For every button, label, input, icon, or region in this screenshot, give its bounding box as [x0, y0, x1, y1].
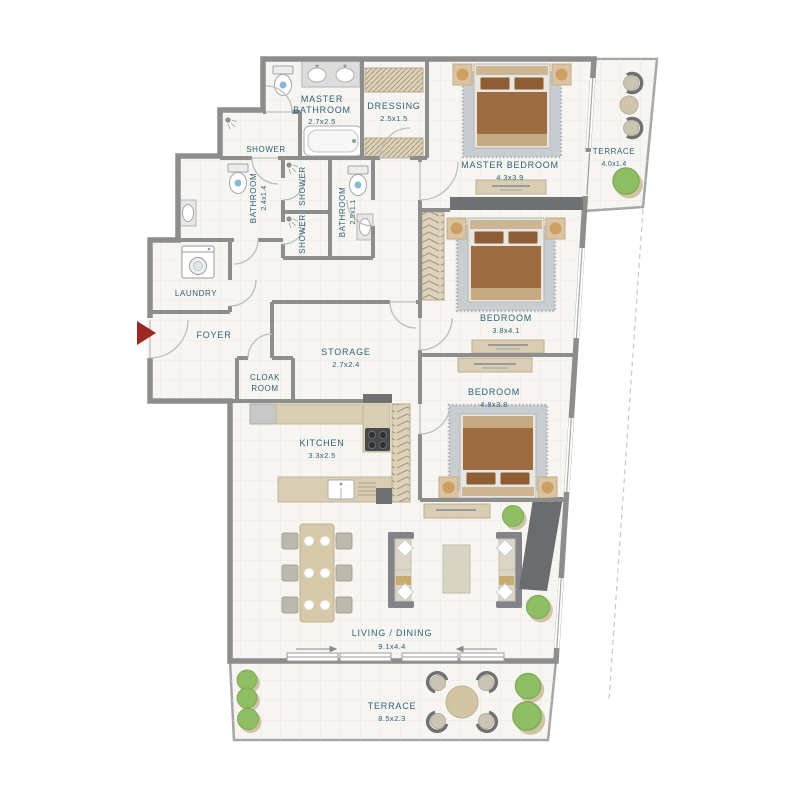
label-master-bedroom: MASTER BEDROOM [461, 160, 559, 170]
floor-plan: MASTER BATHROOM 2.7x2.5 DRESSING 2.5x1.5… [0, 0, 800, 800]
sink-icon [180, 200, 196, 226]
svg-text:3.3x2.5: 3.3x2.5 [308, 451, 335, 460]
svg-text:2.7x2.5: 2.7x2.5 [308, 117, 335, 126]
label-living-dining: LIVING / DINING [352, 628, 433, 638]
svg-text:2.4x1.4: 2.4x1.4 [261, 185, 268, 210]
svg-text:BATHROOM: BATHROOM [293, 105, 351, 115]
floor-plan-page: MASTER BATHROOM 2.7x2.5 DRESSING 2.5x1.5… [0, 0, 800, 800]
label-storage: STORAGE [321, 347, 370, 357]
bed-icon [453, 64, 571, 157]
label-terrace-right: TERRACE [593, 147, 635, 156]
vanity-double-sink-icon [302, 61, 360, 87]
bed-icon [439, 405, 557, 498]
toilet-icon [273, 66, 293, 96]
sideboard-icon [424, 504, 490, 518]
svg-text:4.8x3.8: 4.8x3.8 [480, 400, 507, 409]
terrace-table-icon [620, 96, 638, 114]
svg-text:2.5x1.1: 2.5x1.1 [350, 199, 357, 224]
svg-text:4.0x1.4: 4.0x1.4 [601, 161, 626, 168]
label-kitchen: KITCHEN [299, 438, 344, 448]
bathtub-icon [304, 126, 362, 156]
label-bedroom-middle: BEDROOM [480, 313, 532, 323]
label-bathroom-left: BATHROOM [249, 173, 258, 223]
pantry-cabinet-icon [392, 404, 410, 502]
toilet-icon [348, 166, 368, 196]
label-cloak-room: CLOAK [250, 373, 280, 382]
stove-icon [365, 428, 390, 451]
sink-icon [357, 214, 373, 240]
svg-text:ROOM: ROOM [251, 384, 278, 393]
toilet-icon [228, 164, 248, 194]
label-shower-stall-1: SHOWER [298, 166, 307, 206]
coffee-table-icon [443, 545, 470, 593]
label-bedroom-lower: BEDROOM [468, 387, 520, 397]
washing-machine-icon [182, 246, 214, 278]
svg-text:2.7x2.4: 2.7x2.4 [332, 360, 359, 369]
label-shower-stall-2: SHOWER [298, 214, 307, 254]
label-foyer: FOYER [196, 330, 231, 340]
label-shower-top: SHOWER [246, 145, 286, 154]
bed-icon [447, 218, 565, 311]
label-bathroom-middle: BATHROOM [338, 187, 347, 237]
svg-text:3.8x4.1: 3.8x4.1 [492, 326, 519, 335]
sofa-icon [388, 532, 414, 608]
sofa-icon [496, 532, 522, 608]
svg-text:4.3x3.9: 4.3x3.9 [496, 173, 523, 182]
wardrobe-icon [422, 212, 444, 300]
dresser-icon [476, 180, 546, 194]
label-terrace-bottom: TERRACE [368, 701, 417, 711]
svg-text:8.5x2.3: 8.5x2.3 [378, 714, 405, 723]
dresser-icon [472, 340, 544, 353]
label-laundry: LAUNDRY [175, 289, 217, 298]
plot-boundary-line [609, 209, 643, 700]
label-master-bathroom: MASTER [301, 94, 343, 104]
dining-table-icon [282, 524, 352, 622]
label-dressing: DRESSING [367, 101, 420, 111]
svg-text:9.1x4.4: 9.1x4.4 [378, 642, 405, 651]
svg-text:2.5x1.5: 2.5x1.5 [380, 114, 407, 123]
terrace-table-icon [446, 686, 478, 718]
dresser-icon [458, 358, 532, 372]
